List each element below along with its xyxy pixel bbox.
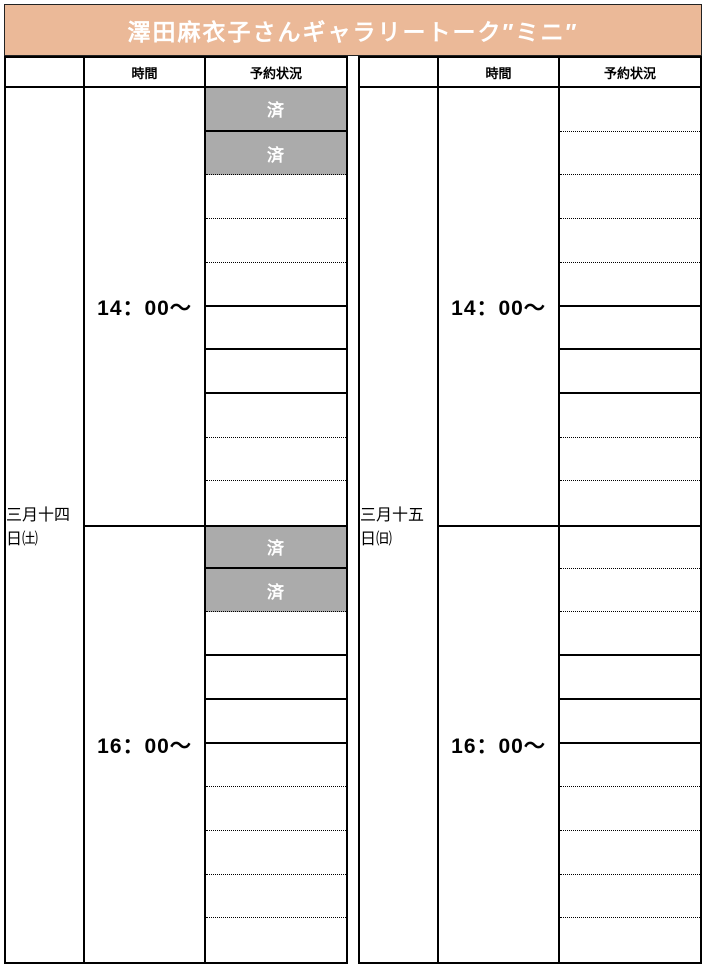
reservation-slot-empty xyxy=(560,918,700,962)
title-bar: 澤田麻衣子さんギャラリートーク″ミニ″ xyxy=(4,4,702,56)
reservation-slot-empty xyxy=(560,394,700,438)
reservation-slot-reserved: 済 xyxy=(206,132,346,176)
reservation-slot-reserved: 済 xyxy=(206,569,346,613)
time-slot-cell: 14：00～ xyxy=(85,88,206,525)
status-column-header: 予約状況 xyxy=(560,58,700,88)
reservation-slot-empty xyxy=(206,656,346,700)
reservation-slot-empty xyxy=(206,350,346,394)
reservation-slot-empty xyxy=(560,875,700,919)
reservation-slot-empty xyxy=(560,744,700,788)
reservation-slot-empty xyxy=(560,132,700,176)
reservation-slot-reserved: 済 xyxy=(206,525,346,569)
reservation-slot-empty xyxy=(206,831,346,875)
reservation-slot-empty xyxy=(206,438,346,482)
reservation-slot-reserved: 済 xyxy=(206,88,346,132)
day-table-2: 時間予約状況三月十五日㈰14：00～16：00～ xyxy=(358,56,702,964)
reservation-slot-empty xyxy=(206,700,346,744)
reservation-sheet: 澤田麻衣子さんギャラリートーク″ミニ″ 時間予約状況三月十四日㈯14：00～済済… xyxy=(4,4,702,964)
reservation-slot-empty xyxy=(560,438,700,482)
reservation-slot-empty xyxy=(206,744,346,788)
date-cell: 三月十五日㈰ xyxy=(360,88,439,962)
time-slot-cell: 14：00～ xyxy=(439,88,560,525)
reservation-slot-empty xyxy=(560,175,700,219)
reservation-slot-empty xyxy=(206,918,346,962)
schedule-tables: 時間予約状況三月十四日㈯14：00～済済16：00～済済時間予約状況三月十五日㈰… xyxy=(4,56,702,964)
status-column-header: 予約状況 xyxy=(206,58,346,88)
reservation-slot-empty xyxy=(560,219,700,263)
time-column-header: 時間 xyxy=(439,58,560,88)
date-cell: 三月十四日㈯ xyxy=(6,88,85,962)
reservation-slot-empty xyxy=(560,831,700,875)
reservation-slot-empty xyxy=(206,875,346,919)
reservation-slot-empty xyxy=(560,88,700,132)
reservation-slot-empty xyxy=(206,612,346,656)
reservation-slot-empty xyxy=(560,787,700,831)
time-slot-cell: 16：00～ xyxy=(439,525,560,962)
reservation-slot-empty xyxy=(560,481,700,525)
page-title: 澤田麻衣子さんギャラリートーク″ミニ″ xyxy=(127,13,578,47)
time-column-header: 時間 xyxy=(85,58,206,88)
reservation-slot-empty xyxy=(206,787,346,831)
reservation-slot-empty xyxy=(206,307,346,351)
reservation-slot-empty xyxy=(206,175,346,219)
header-corner-cell xyxy=(6,58,85,88)
reservation-slot-empty xyxy=(560,656,700,700)
reservation-slot-empty xyxy=(206,481,346,525)
header-corner-cell xyxy=(360,58,439,88)
reservation-slot-empty xyxy=(206,263,346,307)
date-label: 三月十四日㈯ xyxy=(6,501,83,549)
reservation-slot-empty xyxy=(560,569,700,613)
date-label: 三月十五日㈰ xyxy=(360,501,437,549)
time-slot-cell: 16：00～ xyxy=(85,525,206,962)
day-table-1: 時間予約状況三月十四日㈯14：00～済済16：00～済済 xyxy=(4,56,348,964)
reservation-slot-empty xyxy=(560,612,700,656)
reservation-slot-empty xyxy=(560,307,700,351)
reservation-slot-empty xyxy=(560,350,700,394)
reservation-slot-empty xyxy=(560,700,700,744)
reservation-slot-empty xyxy=(560,525,700,569)
reservation-slot-empty xyxy=(206,394,346,438)
reservation-slot-empty xyxy=(560,263,700,307)
reservation-slot-empty xyxy=(206,219,346,263)
